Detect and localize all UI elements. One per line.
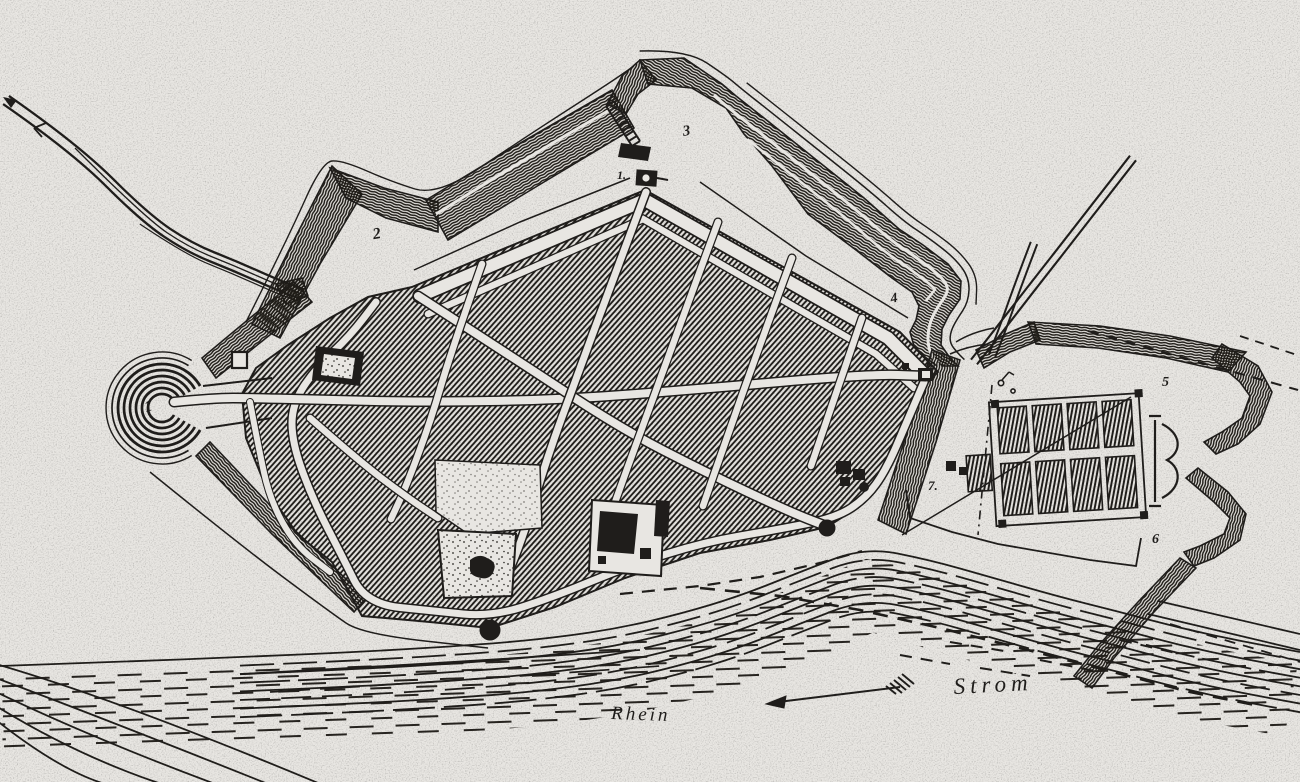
svg-text:Strom: Strom <box>953 670 1033 699</box>
svg-text:Rhein: Rhein <box>610 703 671 726</box>
svg-text:1.: 1. <box>617 168 626 182</box>
svg-text:5: 5 <box>1162 375 1169 390</box>
svg-text:6: 6 <box>1152 532 1159 547</box>
svg-text:2.: 2. <box>902 362 911 373</box>
svg-text:7.: 7. <box>928 478 938 493</box>
